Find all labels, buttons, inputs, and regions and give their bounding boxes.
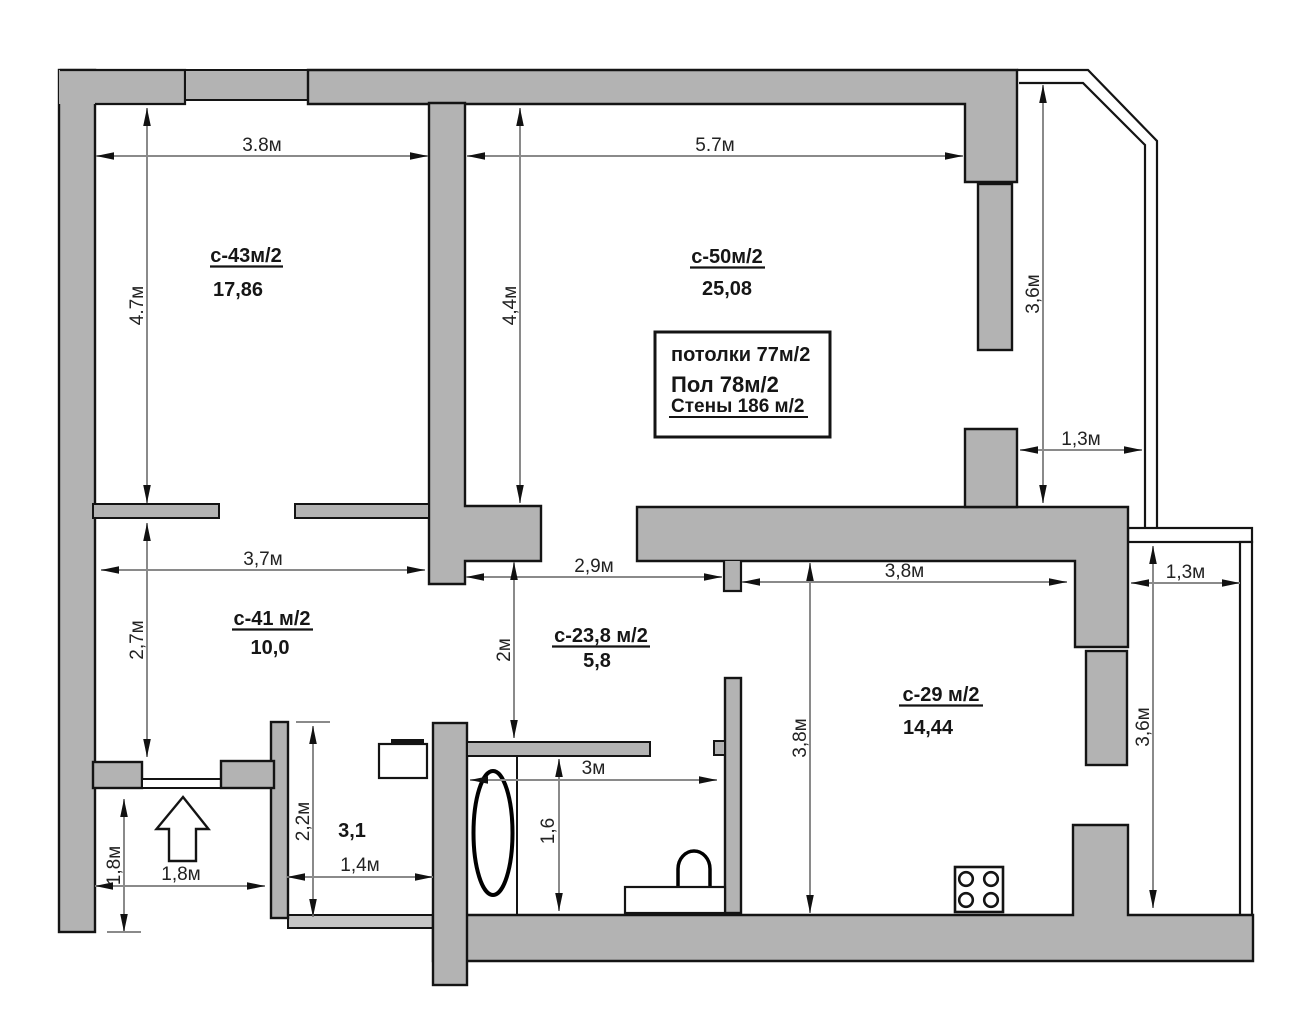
svg-text:17,86: 17,86 xyxy=(213,279,263,301)
svg-text:4.7м: 4.7м xyxy=(127,286,148,325)
svg-text:с-29 м/2: с-29 м/2 xyxy=(902,684,979,706)
svg-text:2м: 2м xyxy=(494,638,515,662)
svg-text:25,08: 25,08 xyxy=(702,278,752,300)
svg-text:2,9м: 2,9м xyxy=(574,556,613,577)
svg-text:3,6м: 3,6м xyxy=(1133,707,1154,746)
svg-text:1,4м: 1,4м xyxy=(340,855,379,876)
svg-text:5,8: 5,8 xyxy=(583,650,611,672)
svg-text:потолки 77м/2: потолки 77м/2 xyxy=(671,344,810,366)
svg-text:с-43м/2: с-43м/2 xyxy=(210,245,282,267)
svg-text:Пол 78м/2: Пол 78м/2 xyxy=(671,372,779,397)
svg-text:с-23,8 м/2: с-23,8 м/2 xyxy=(554,625,648,647)
svg-text:1,3м: 1,3м xyxy=(1061,429,1100,450)
svg-text:Стены 186 м/2: Стены 186 м/2 xyxy=(671,396,804,417)
svg-text:2,7м: 2,7м xyxy=(127,620,148,659)
svg-text:2,2м: 2,2м xyxy=(293,802,314,841)
svg-text:1,3м: 1,3м xyxy=(1166,562,1205,583)
svg-text:3,1: 3,1 xyxy=(338,820,366,842)
svg-text:1,8м: 1,8м xyxy=(104,846,125,885)
svg-text:с-50м/2: с-50м/2 xyxy=(691,246,763,268)
svg-text:3,8м: 3,8м xyxy=(790,718,811,757)
svg-text:4,4м: 4,4м xyxy=(500,286,521,325)
svg-text:14,44: 14,44 xyxy=(903,717,954,739)
svg-text:3,6м: 3,6м xyxy=(1023,274,1044,313)
svg-text:3,7м: 3,7м xyxy=(243,549,282,570)
svg-text:5.7м: 5.7м xyxy=(695,135,734,156)
svg-text:1,8м: 1,8м xyxy=(161,864,200,885)
svg-text:3м: 3м xyxy=(582,758,606,779)
svg-text:10,0: 10,0 xyxy=(251,637,290,659)
svg-text:3,8м: 3,8м xyxy=(885,561,924,582)
svg-text:1,6: 1,6 xyxy=(538,818,559,844)
svg-text:с-41 м/2: с-41 м/2 xyxy=(233,608,310,630)
svg-text:3.8м: 3.8м xyxy=(242,135,281,156)
